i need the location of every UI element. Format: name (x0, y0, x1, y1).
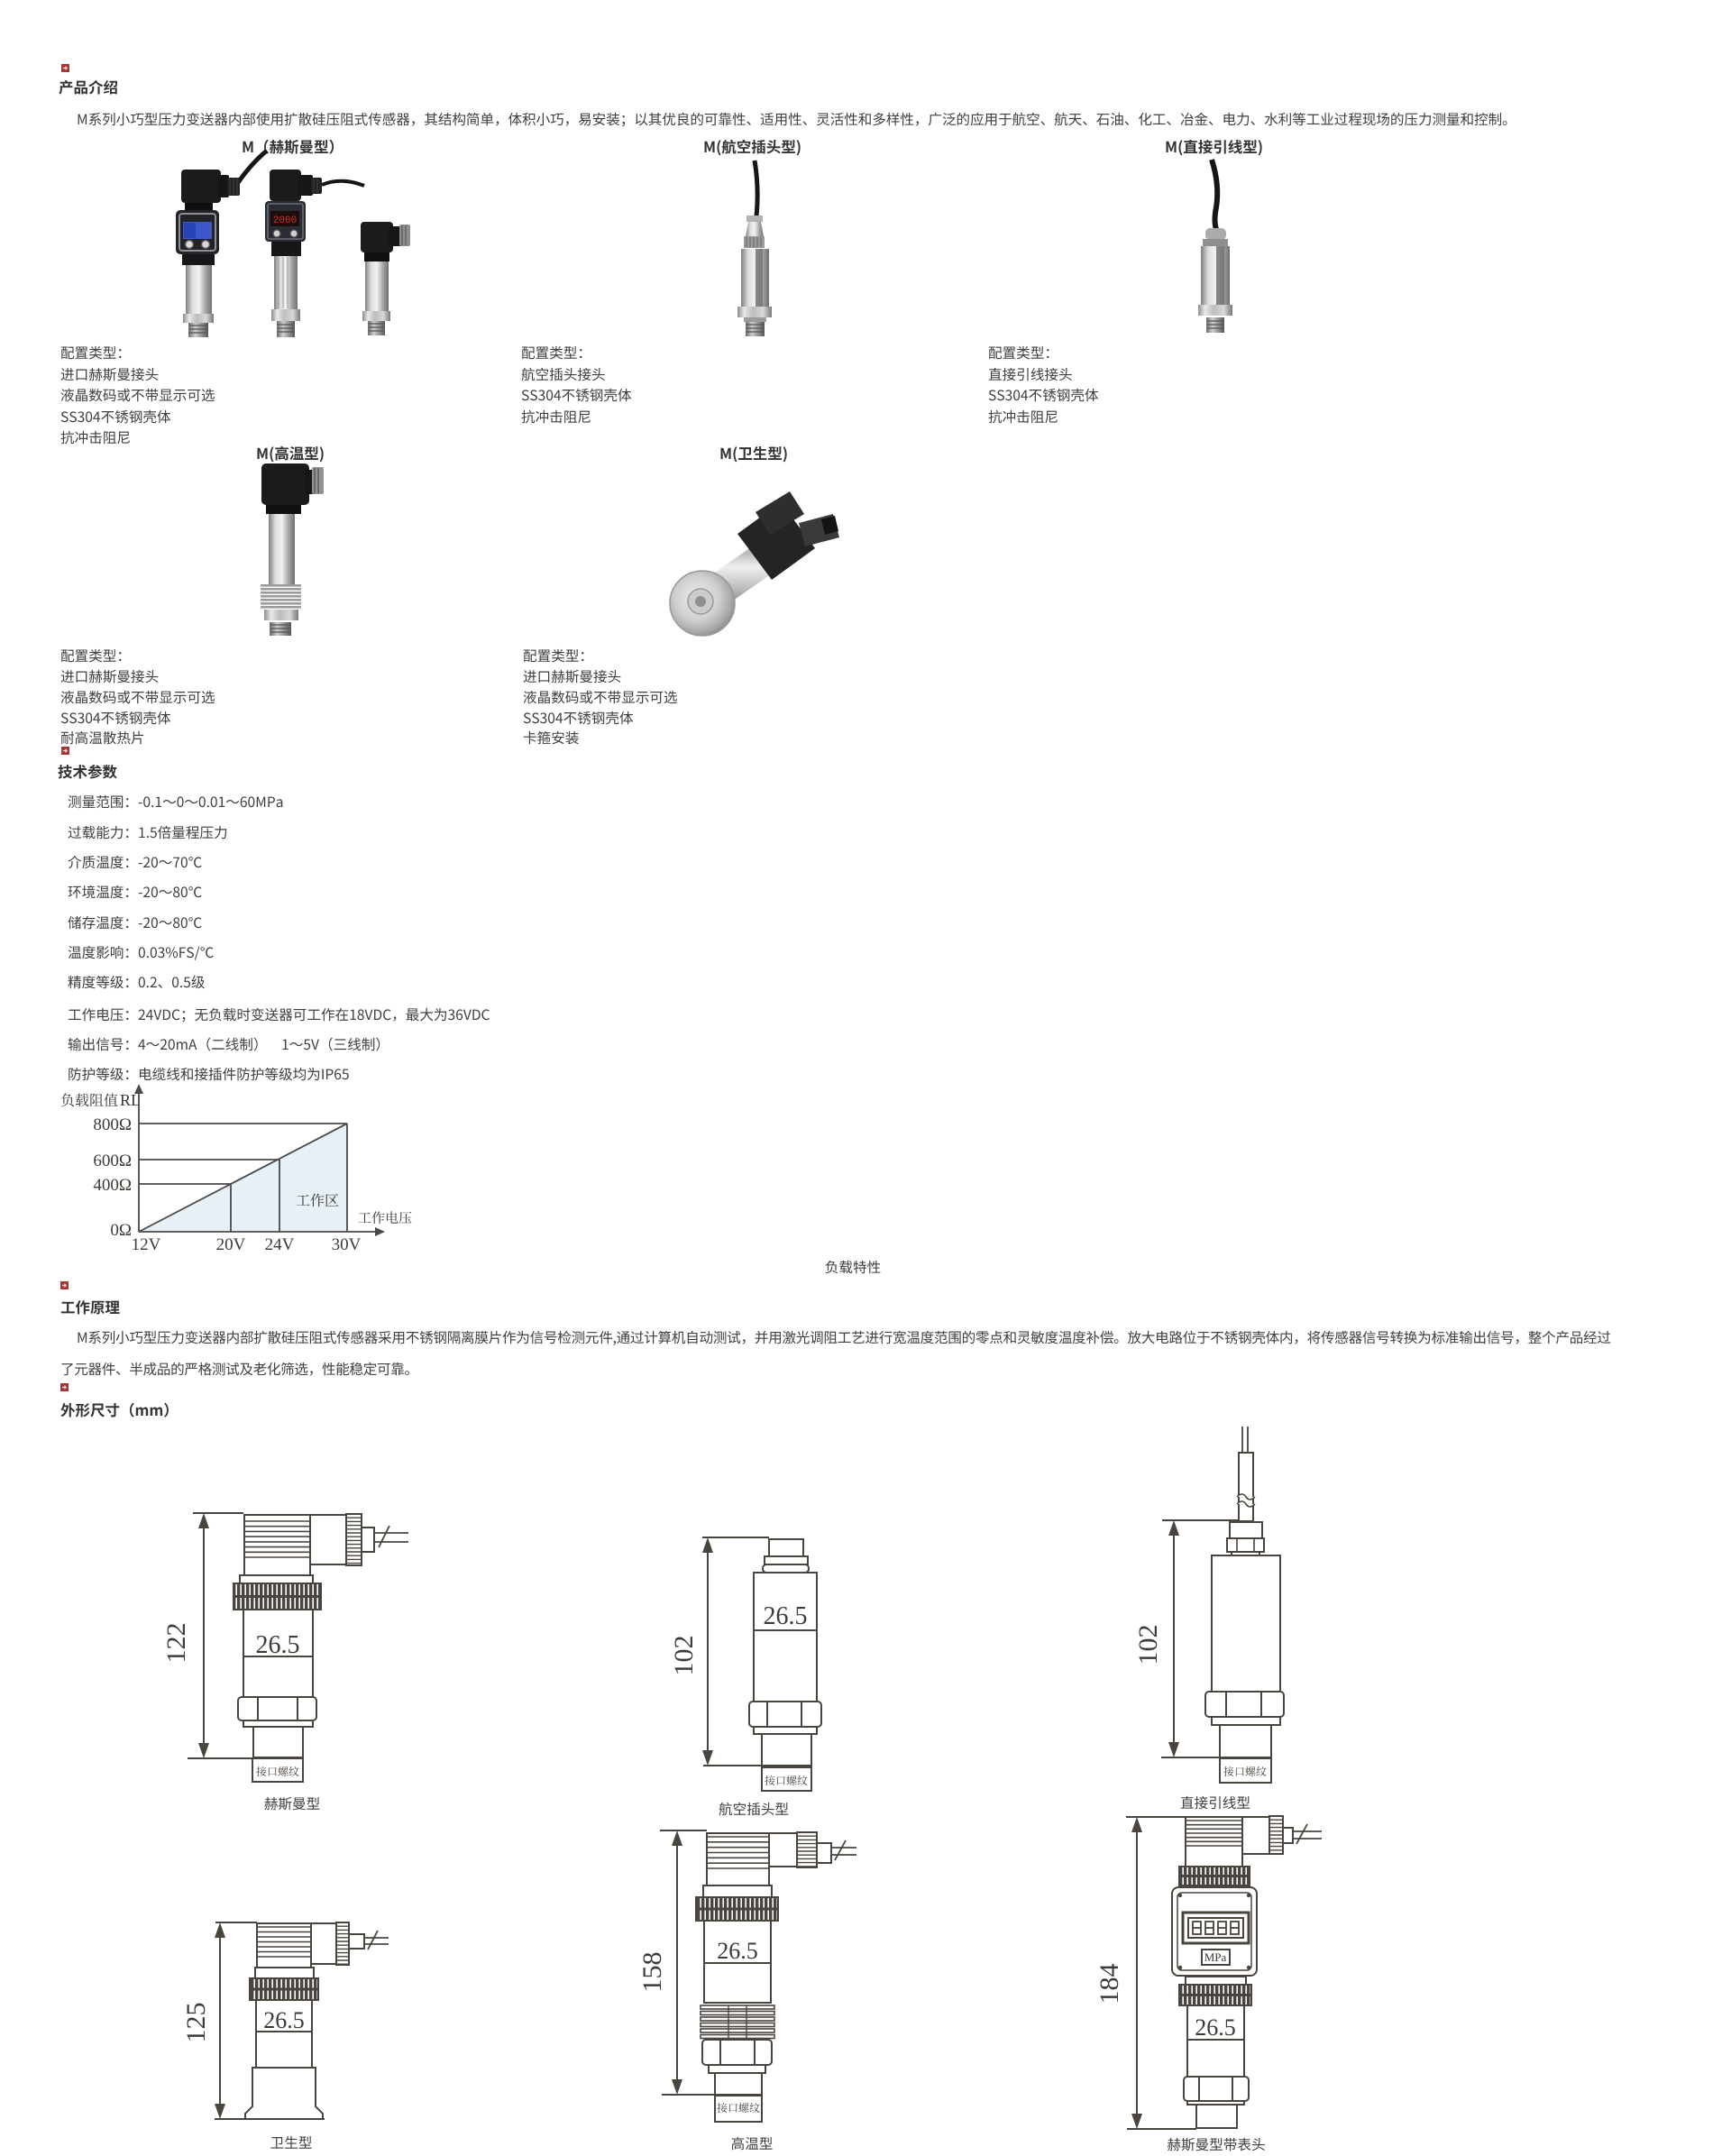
svg-text:122: 122 (161, 1623, 191, 1664)
svg-text:125: 125 (181, 2003, 211, 2043)
svg-text:26.5: 26.5 (717, 1938, 758, 1964)
svg-text:102: 102 (1133, 1625, 1163, 1665)
svg-text:MPa: MPa (1204, 1950, 1227, 1964)
svg-text:30V: 30V (332, 1235, 362, 1254)
svg-text:0Ω: 0Ω (110, 1221, 132, 1240)
svg-text:12V: 12V (132, 1235, 161, 1254)
svg-text:20V: 20V (216, 1235, 246, 1254)
svg-text:158: 158 (637, 1952, 667, 1993)
svg-text:800Ω: 800Ω (93, 1115, 132, 1134)
svg-text:26.5: 26.5 (263, 2007, 305, 2033)
svg-text:102: 102 (669, 1636, 699, 1676)
svg-text:26.5: 26.5 (256, 1631, 300, 1659)
svg-text:400Ω: 400Ω (93, 1176, 132, 1195)
svg-text:26.5: 26.5 (1195, 2014, 1236, 2041)
svg-text:2000: 2000 (273, 216, 297, 226)
svg-text:184: 184 (1094, 1964, 1124, 2005)
svg-text:26.5: 26.5 (764, 1602, 808, 1630)
svg-text:600Ω: 600Ω (93, 1151, 132, 1170)
svg-text:24V: 24V (265, 1235, 295, 1254)
